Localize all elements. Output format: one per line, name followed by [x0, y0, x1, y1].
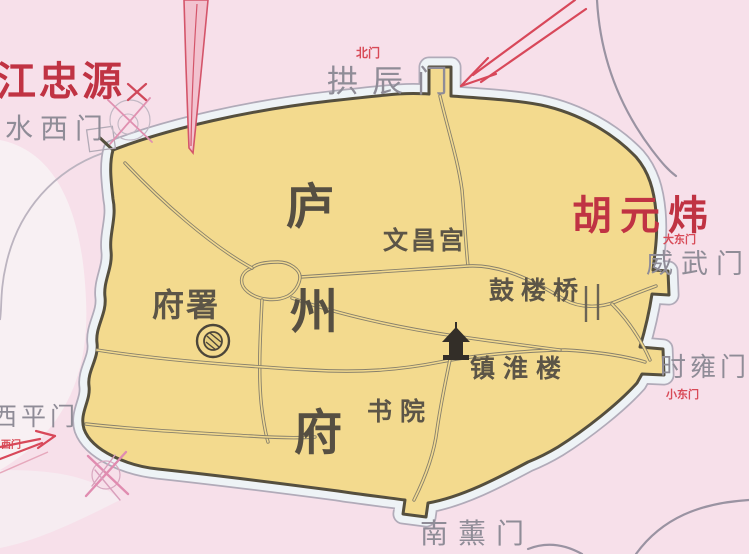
gate-label-shuiximen: 水西门	[5, 113, 110, 144]
gate-label-xipingmen: 西平门	[0, 403, 79, 431]
gate-label-ximen-small: 西门	[1, 438, 21, 451]
label-academy: 书院	[367, 397, 433, 426]
label-prefect-office: 府署	[152, 287, 220, 323]
label-jiang-zhongyuan: 江忠源	[0, 60, 125, 104]
label-wenchang-palace: 文昌宫	[383, 226, 467, 255]
label-drum-tower-bridge: 鼓楼桥	[489, 277, 585, 305]
luzhou-city-map: 江忠源 胡元炜 拱辰门 水西门 威武门 时雍门 南薰门 西平门 北门 大东门 小…	[0, 0, 749, 554]
map-canvas: 江忠源 胡元炜 拱辰门 水西门 威武门 时雍门 南薰门 西平门 北门 大东门 小…	[0, 0, 749, 554]
gate-label-dadongmen-small: 大东门	[663, 232, 696, 246]
city-name-char-zhou: 州	[290, 286, 338, 339]
gate-label-nanxunmen: 南薰门	[420, 518, 534, 549]
label-zhenhuai-tower: 镇淮楼	[470, 355, 569, 383]
gate-label-gongchenmen: 拱辰门	[327, 64, 462, 99]
label-hu-yuanwei: 胡元炜	[572, 194, 716, 238]
gate-label-weiwumen: 威武门	[646, 249, 749, 279]
gate-label-shiyongmen: 时雍门	[660, 352, 749, 382]
gate-label-beimen-small: 北门	[356, 45, 380, 60]
city-name-char-lu: 庐	[286, 181, 334, 234]
city-name-char-fu: 府	[294, 407, 342, 460]
prefect-office-icon	[197, 325, 229, 357]
gate-label-xiaodongmen-small: 小东门	[665, 387, 699, 401]
